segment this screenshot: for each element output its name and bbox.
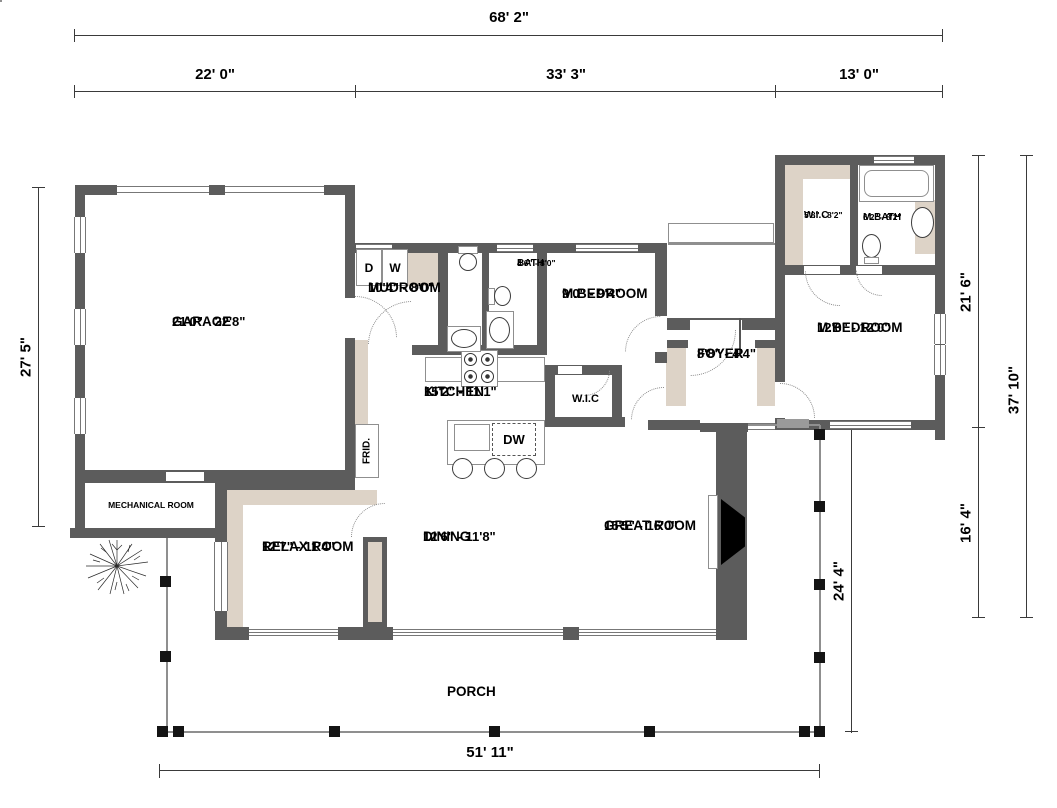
window-wall bbox=[579, 629, 716, 636]
mechanical-room-label: MECHANICAL ROOM bbox=[108, 500, 194, 510]
toilet-tank bbox=[864, 257, 879, 264]
wall-segment bbox=[850, 163, 858, 265]
dim-garage-width: 22' 0" bbox=[195, 66, 235, 83]
dimension-line bbox=[978, 156, 979, 618]
sink bbox=[451, 329, 477, 348]
back-door-threshold bbox=[777, 419, 809, 428]
porch-post bbox=[799, 726, 810, 737]
dimension-tick bbox=[819, 764, 820, 778]
porch-post bbox=[489, 726, 500, 737]
stove-burner bbox=[464, 370, 477, 383]
window bbox=[934, 345, 946, 375]
dim-left-height: 27' 5" bbox=[18, 337, 35, 377]
sink bbox=[489, 317, 510, 343]
dimension-tick bbox=[775, 85, 776, 98]
entry-line bbox=[668, 243, 775, 245]
dimension-line bbox=[75, 35, 943, 36]
wall-segment bbox=[775, 155, 945, 165]
door-opening bbox=[690, 320, 742, 330]
island-sink bbox=[454, 424, 490, 451]
porch-post bbox=[173, 726, 184, 737]
dimension-line bbox=[1026, 156, 1027, 618]
dishwasher-label: DW bbox=[503, 432, 525, 447]
room-size: 15'5" - 16'0" bbox=[604, 517, 677, 534]
bar-stool bbox=[516, 458, 537, 479]
wall-segment bbox=[345, 253, 355, 480]
toilet-bowl bbox=[459, 253, 477, 271]
sink bbox=[911, 207, 934, 238]
room-size: 4'6" - 8'0" bbox=[517, 258, 556, 269]
wall-segment bbox=[716, 627, 747, 640]
window bbox=[830, 421, 873, 429]
dim-porch-width: 51' 11" bbox=[466, 744, 513, 761]
room-size: 12'6" - 11'8" bbox=[423, 528, 496, 545]
bar-stool bbox=[452, 458, 473, 479]
foyer-closet-left bbox=[666, 348, 686, 406]
beige-fill bbox=[355, 340, 368, 424]
wall-segment bbox=[935, 155, 945, 440]
dimension-tick bbox=[74, 29, 75, 42]
porch-line bbox=[166, 538, 168, 734]
porch-post bbox=[160, 576, 171, 587]
window bbox=[576, 244, 638, 252]
dim-overall-width: 68' 2" bbox=[489, 9, 529, 26]
window bbox=[934, 314, 946, 344]
wall-segment bbox=[648, 420, 700, 430]
porch-post bbox=[814, 726, 825, 737]
floor-plan: 68' 2" 22' 0" 33' 3" 13' 0" 27' 5" 21' 6… bbox=[0, 0, 1057, 808]
dim-right-total: 37' 10" bbox=[1006, 366, 1023, 414]
window bbox=[497, 244, 533, 252]
room-name: PORCH bbox=[447, 683, 496, 701]
dimension-tick bbox=[32, 526, 45, 527]
room-size: 12'0" - 12'0" bbox=[817, 319, 890, 336]
stove-burner bbox=[481, 353, 494, 366]
room-size: 9'0" - 9'4" bbox=[562, 285, 621, 302]
dimension-line bbox=[160, 770, 820, 771]
porch-post bbox=[814, 579, 825, 590]
porch-post bbox=[157, 726, 168, 737]
toilet-bowl bbox=[494, 286, 511, 306]
porch-post bbox=[644, 726, 655, 737]
dim-right-upper: 21' 6" bbox=[958, 272, 975, 312]
dryer-label: D bbox=[365, 261, 374, 275]
dimension-tick bbox=[32, 187, 45, 188]
window bbox=[214, 542, 228, 577]
dimension-tick bbox=[355, 85, 356, 98]
dryer-box bbox=[0, 0, 2, 2]
dimension-line bbox=[75, 91, 943, 92]
wall-segment bbox=[215, 627, 249, 640]
room-name: W.I.C bbox=[572, 392, 599, 407]
porch-post bbox=[329, 726, 340, 737]
bar-stool bbox=[484, 458, 505, 479]
dim-right-lower: 16' 4" bbox=[958, 503, 975, 543]
dishwasher-box: DW bbox=[492, 423, 536, 456]
wall-segment bbox=[664, 340, 688, 348]
window bbox=[874, 156, 914, 164]
dimension-tick bbox=[74, 85, 75, 98]
washer-label: W bbox=[389, 261, 400, 275]
garage-door bbox=[225, 186, 324, 193]
bathtub-basin bbox=[864, 170, 929, 197]
stove-burner bbox=[481, 370, 494, 383]
beige-fill bbox=[227, 490, 377, 505]
dimension-tick bbox=[845, 731, 858, 732]
porch-post bbox=[814, 429, 825, 440]
room-size: 8'8" - 4'4" bbox=[697, 345, 756, 362]
window bbox=[74, 217, 86, 253]
wall-segment bbox=[412, 345, 438, 355]
wall-segment bbox=[545, 417, 625, 427]
toilet-bowl bbox=[862, 234, 881, 258]
wic-shelves bbox=[785, 163, 851, 179]
dimension-tick bbox=[972, 155, 985, 156]
entry-stoop bbox=[668, 223, 774, 243]
window-wall bbox=[393, 629, 563, 636]
dimension-tick bbox=[972, 427, 985, 428]
wall-segment bbox=[563, 627, 579, 640]
dimension-tick bbox=[972, 617, 985, 618]
door-opening bbox=[345, 298, 355, 338]
room-size: 21'0" - 22'8" bbox=[172, 313, 245, 330]
door-opening bbox=[558, 366, 582, 374]
dim-right-width: 13' 0" bbox=[839, 66, 879, 83]
garage-door bbox=[117, 186, 209, 193]
wall-segment bbox=[209, 185, 225, 195]
room-size: 10'4" - 8'0" bbox=[368, 279, 434, 296]
window bbox=[214, 577, 228, 611]
dimension-tick bbox=[159, 764, 160, 778]
dimension-line bbox=[38, 188, 39, 527]
room-size: 6'2" - 8'2" bbox=[863, 212, 902, 223]
room-size: 15'2" - 11'1" bbox=[424, 383, 497, 400]
foyer-closet-right bbox=[757, 348, 777, 406]
beige-fill bbox=[227, 505, 243, 627]
dimension-line bbox=[851, 430, 852, 733]
dimension-tick bbox=[942, 29, 943, 42]
porch-post bbox=[160, 651, 171, 662]
fridge-label: FRID. bbox=[362, 438, 373, 464]
window bbox=[74, 309, 86, 345]
beige-fill bbox=[368, 542, 382, 622]
window bbox=[249, 629, 338, 636]
stove-burner bbox=[464, 353, 477, 366]
fireplace-mantle bbox=[708, 495, 718, 569]
dimension-tick bbox=[1020, 155, 1033, 156]
room-size: 5'8" - 8'2" bbox=[804, 210, 843, 221]
door-opening bbox=[166, 472, 204, 481]
dimension-tick bbox=[942, 85, 943, 98]
porch-post bbox=[814, 501, 825, 512]
dim-mid-width: 33' 3" bbox=[546, 66, 586, 83]
window bbox=[872, 421, 911, 429]
window bbox=[74, 398, 86, 434]
dimension-tick bbox=[1020, 617, 1033, 618]
porch-post bbox=[814, 652, 825, 663]
room-size: 12'7" - 11'4" bbox=[262, 538, 335, 555]
tree-sketch bbox=[82, 536, 152, 598]
wic-shelves bbox=[785, 179, 803, 267]
wall-segment bbox=[338, 627, 393, 640]
dim-porch-depth: 24' 4" bbox=[831, 561, 848, 601]
wall-segment bbox=[215, 477, 355, 490]
